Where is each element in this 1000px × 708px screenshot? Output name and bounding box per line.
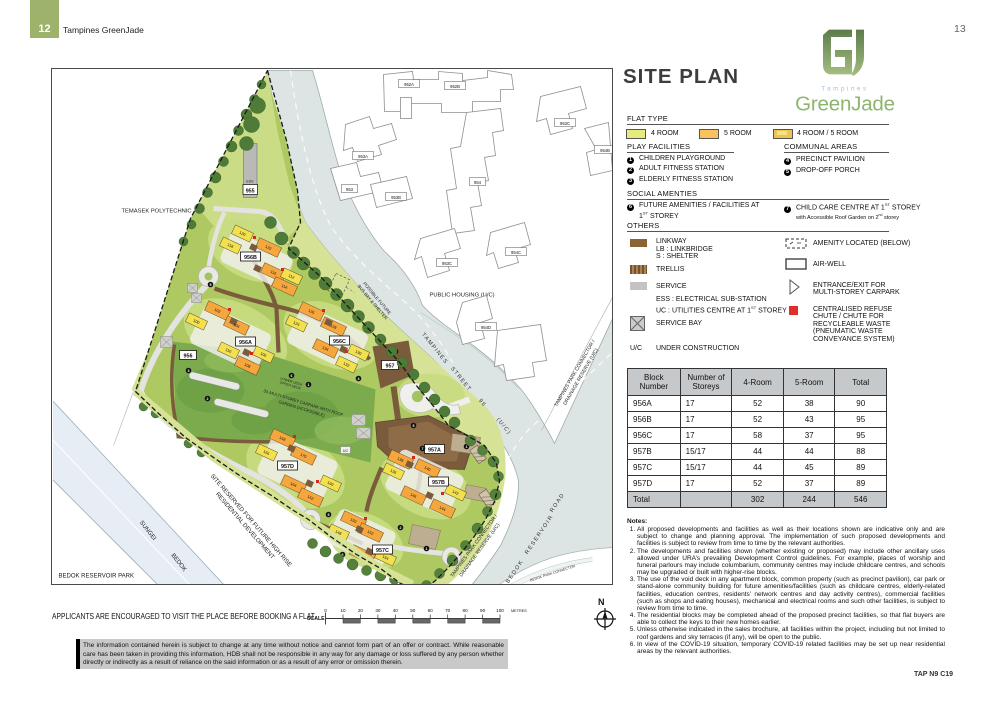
svg-text:40: 40 — [393, 608, 399, 613]
svg-text:5: 5 — [327, 512, 329, 516]
svg-text:50: 50 — [410, 608, 416, 613]
svg-text:Tampines: Tampines — [821, 86, 868, 93]
svg-text:957C: 957C — [376, 548, 389, 554]
svg-text:956B: 956B — [244, 255, 257, 261]
svg-text:953: 953 — [346, 186, 354, 191]
svg-text:1: 1 — [465, 444, 467, 448]
svg-text:70: 70 — [445, 608, 451, 613]
svg-text:20: 20 — [358, 608, 364, 613]
svg-text:0: 0 — [324, 608, 327, 613]
svg-text:954B: 954B — [600, 147, 610, 152]
svg-text:953A: 953A — [358, 153, 368, 158]
svg-text:80: 80 — [463, 608, 469, 613]
svg-text:2: 2 — [206, 396, 208, 400]
svg-text:60: 60 — [428, 608, 434, 613]
svg-text:956: 956 — [183, 353, 192, 359]
svg-text:957B: 957B — [432, 480, 445, 486]
svg-text:METRES: METRES — [511, 609, 527, 613]
svg-text:5: 5 — [412, 423, 414, 427]
svg-text:7: 7 — [421, 446, 423, 450]
svg-text:955: 955 — [245, 188, 254, 194]
svg-text:30: 30 — [375, 608, 381, 613]
svg-text:90: 90 — [480, 608, 486, 613]
svg-text:957: 957 — [385, 363, 394, 369]
svg-text:BEDOK RESERVOIR PARK: BEDOK RESERVOIR PARK — [58, 573, 133, 579]
svg-text:956A: 956A — [239, 340, 252, 346]
svg-text:952B: 952B — [450, 83, 460, 88]
svg-text:1: 1 — [425, 546, 427, 550]
svg-text:954: 954 — [474, 179, 482, 184]
svg-text:957D: 957D — [281, 464, 294, 470]
svg-text:1: 1 — [307, 382, 309, 386]
svg-text:2: 2 — [399, 525, 401, 529]
svg-text:10: 10 — [340, 608, 346, 613]
svg-text:954C: 954C — [510, 249, 520, 254]
svg-text:952A: 952A — [404, 81, 414, 86]
svg-text:953C: 953C — [559, 120, 569, 125]
svg-text:956C: 956C — [333, 339, 346, 345]
svg-text:953B: 953B — [391, 194, 401, 199]
svg-text:953C: 953C — [441, 260, 451, 265]
svg-text:GreenJade: GreenJade — [795, 93, 895, 116]
svg-text:957A: 957A — [428, 447, 441, 453]
svg-text:4: 4 — [357, 376, 359, 380]
svg-text:100: 100 — [496, 608, 504, 613]
svg-text:3: 3 — [187, 368, 189, 372]
svg-text:ESS: ESS — [246, 179, 254, 183]
svg-text:954D: 954D — [480, 324, 490, 329]
svg-text:6: 6 — [290, 373, 292, 377]
svg-text:5: 5 — [209, 282, 211, 286]
svg-text:UC: UC — [342, 449, 348, 453]
svg-text:TEMASEK POLYTECHNIC: TEMASEK POLYTECHNIC — [121, 208, 191, 214]
